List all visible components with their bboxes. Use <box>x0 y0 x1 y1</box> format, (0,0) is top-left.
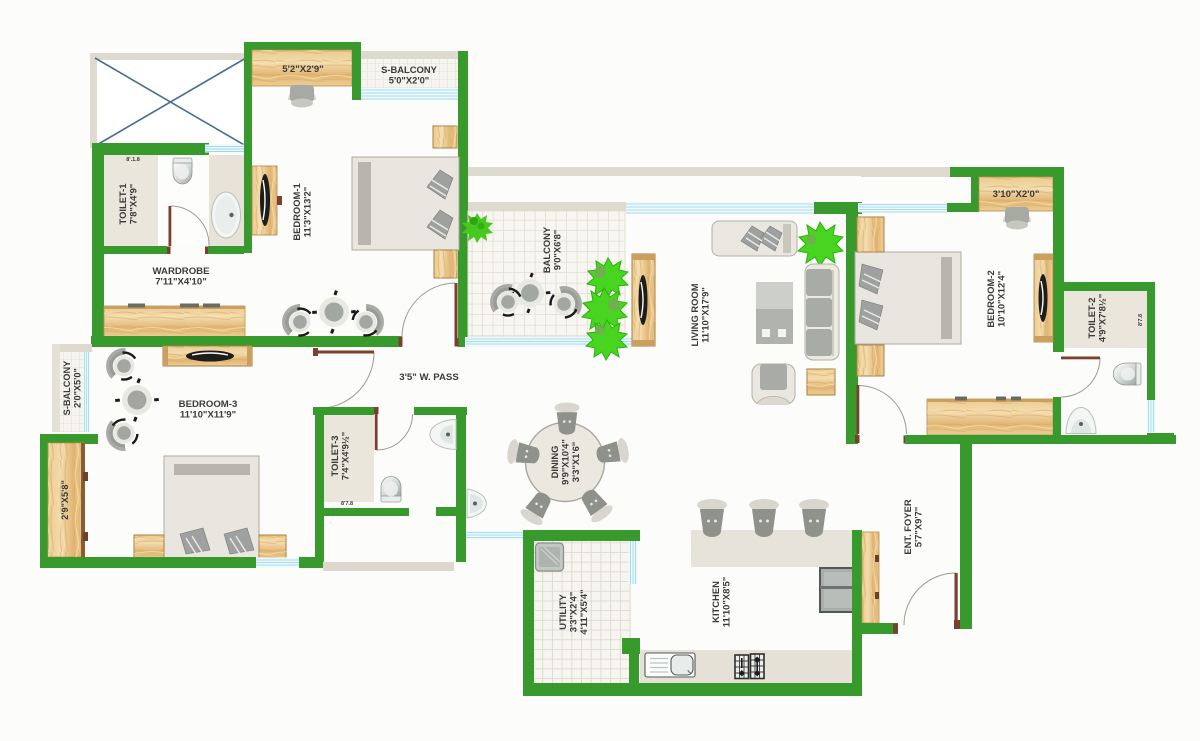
svg-text:TOILET-17'8"X4'9": TOILET-17'8"X4'9" <box>117 184 139 225</box>
svg-text:BEDROOM-3: BEDROOM-3 <box>179 399 238 410</box>
svg-text:UTILITY3'3"X2'4"4'11"X5'4": UTILITY3'3"X2'4"4'11"X5'4" <box>557 589 589 634</box>
svg-text:8'7.8: 8'7.8 <box>341 501 353 507</box>
svg-text:7'11"X4'10": 7'11"X4'10" <box>155 277 207 288</box>
svg-text:S-BALCONY2'0"X5'0": S-BALCONY2'0"X5'0" <box>62 361 83 416</box>
svg-text:BALCONY9'0"X6'8": BALCONY9'0"X6'8" <box>541 226 563 273</box>
svg-text:8'7.8: 8'7.8 <box>1138 314 1144 326</box>
svg-text:BEDROOM-210'10"X12'4": BEDROOM-210'10"X12'4" <box>985 270 1007 327</box>
svg-text:KITCHEN11'10"X8'5": KITCHEN11'10"X8'5" <box>710 577 732 627</box>
svg-text:TOILET-37'4"X4'9½": TOILET-37'4"X4'9½" <box>329 432 351 480</box>
svg-text:ENT. FOYER5'7"X9'7": ENT. FOYER5'7"X9'7" <box>902 499 924 554</box>
svg-text:BEDROOM-111'3"X13'2": BEDROOM-111'3"X13'2" <box>291 183 313 240</box>
svg-text:2'9"X5'8": 2'9"X5'8" <box>60 480 70 520</box>
svg-text:DINING9'9"X10'4"3'3"X1'6": DINING9'9"X10'4"3'3"X1'6" <box>549 439 581 485</box>
svg-text:LIVING ROOM11'10"X17'9": LIVING ROOM11'10"X17'9" <box>689 283 711 346</box>
svg-text:11'10"X11'9": 11'10"X11'9" <box>180 410 236 421</box>
svg-text:WARDROBE: WARDROBE <box>152 266 210 277</box>
svg-text:5'0"X2'0": 5'0"X2'0" <box>389 75 429 86</box>
svg-text:3'5" W. PASS: 3'5" W. PASS <box>399 372 459 383</box>
svg-text:5'2"X2'9": 5'2"X2'9" <box>282 64 323 75</box>
svg-text:8'.1.8: 8'.1.8 <box>126 157 140 163</box>
svg-text:3'10"X2'0": 3'10"X2'0" <box>993 189 1040 200</box>
svg-text:TOILET-24'9"X7'8½": TOILET-24'9"X7'8½" <box>1086 294 1108 342</box>
svg-text:S-BALCONY: S-BALCONY <box>381 64 437 75</box>
